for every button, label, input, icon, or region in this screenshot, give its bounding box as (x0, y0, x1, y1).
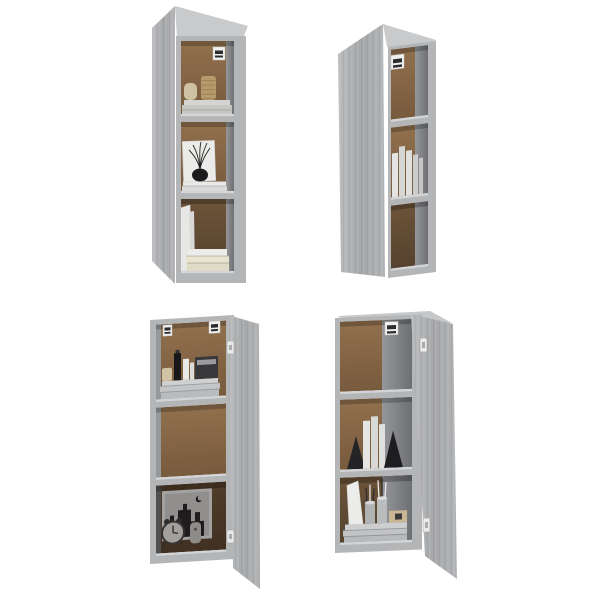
black-vase (192, 169, 208, 182)
compartment-shadow-overlay (156, 481, 226, 553)
product-image: cabinet-top-left (0, 0, 600, 600)
interior-side-wall (226, 122, 234, 191)
door-hinge (227, 341, 234, 354)
ribbed-vase (201, 76, 216, 100)
wood-grain-overlay (152, 6, 175, 284)
cream-jar (162, 368, 172, 382)
beige-vase (184, 83, 197, 100)
wall-bracket (391, 54, 404, 70)
compartment-back (161, 403, 226, 477)
interior-side-wall (415, 45, 428, 117)
cabinet-carcass (335, 315, 422, 553)
door-hinge (420, 338, 427, 352)
wall-bracket (209, 321, 220, 334)
shelf-edge (181, 191, 234, 193)
book-stack (182, 182, 227, 192)
door-hinge (423, 518, 430, 532)
black-bottle (174, 350, 181, 381)
magazine-stack (160, 378, 220, 400)
cabinet-set-illustration: cabinet-top-left (0, 0, 600, 600)
compartment-back (340, 320, 382, 392)
cabinet-top-left: cabinet-top-left (152, 6, 248, 284)
dark-box (195, 356, 218, 379)
wood-grain-overlay (338, 24, 385, 277)
magazine-stack (182, 100, 232, 114)
wooden-box (389, 510, 407, 523)
interior-shadow (181, 199, 234, 204)
shelf-edge (181, 271, 234, 273)
wall-bracket (213, 47, 225, 60)
cabinet-carcass (388, 41, 436, 278)
wall-bracket (163, 325, 172, 337)
cabinet-bottom-left: cabinet-bottom-left (150, 315, 260, 589)
book-stack (186, 249, 229, 271)
interior-side-wall (156, 407, 161, 477)
wood-grain-overlay (228, 315, 260, 589)
magazine-stack (343, 522, 407, 543)
cabinet-carcass (150, 315, 234, 564)
background (0, 0, 600, 600)
compartment-back (391, 203, 415, 269)
wall-bracket (385, 321, 398, 335)
interior-shadow (181, 122, 234, 127)
shelf-edge (181, 114, 234, 116)
interior-side-wall (415, 201, 428, 266)
cabinet-carcass (176, 36, 246, 283)
cabinet-bottom-right: cabinet-bottom-right (335, 311, 457, 579)
door-hinge (227, 530, 234, 543)
interior-shadow (181, 41, 234, 46)
